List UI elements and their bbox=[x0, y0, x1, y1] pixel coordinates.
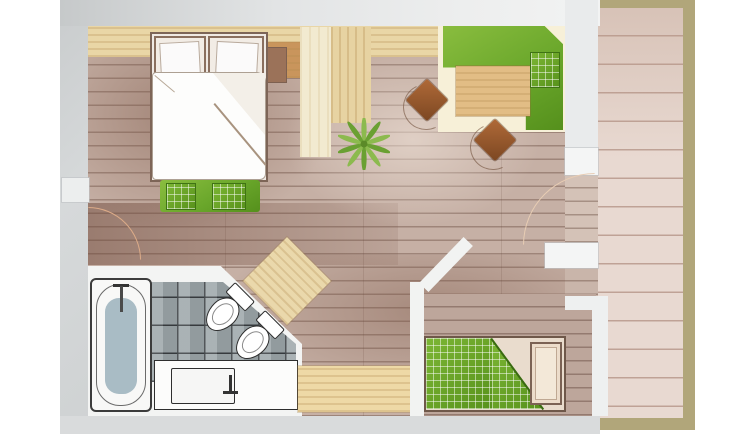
balcony-frame bbox=[598, 0, 695, 430]
beam-wood-strip bbox=[331, 27, 371, 123]
bidet-bowl-rim bbox=[238, 327, 268, 357]
bathtub-faucet-stem bbox=[120, 286, 123, 312]
nightstand bbox=[268, 48, 286, 82]
duvet-fold bbox=[213, 73, 265, 135]
plant bbox=[338, 118, 390, 170]
pillow bbox=[159, 41, 201, 75]
sofa-cushion bbox=[530, 52, 560, 88]
wall-top bbox=[60, 0, 600, 26]
balcony-shade-top bbox=[598, 8, 683, 158]
sink-vanity bbox=[154, 360, 298, 410]
single-bed bbox=[424, 336, 566, 412]
single-bed-duvet bbox=[426, 338, 492, 409]
floor-plan bbox=[0, 0, 754, 435]
door-post bbox=[545, 243, 598, 268]
bathtub bbox=[90, 278, 152, 412]
beam-cream-strip bbox=[300, 27, 331, 157]
sideboard bbox=[298, 366, 410, 412]
double-bed bbox=[150, 32, 268, 182]
bench-cushion bbox=[212, 183, 246, 210]
bathtub-mat bbox=[105, 298, 137, 394]
pillow bbox=[215, 41, 259, 75]
single-bedroom-wall-top bbox=[565, 296, 608, 310]
sink-basin bbox=[171, 368, 235, 404]
plant-icon bbox=[338, 118, 390, 170]
balcony-floor bbox=[598, 8, 683, 418]
single-bedroom-wall-left bbox=[410, 282, 424, 416]
door-post bbox=[62, 178, 89, 202]
duvet-corner-line bbox=[154, 75, 175, 93]
single-bed-pillow-frame bbox=[530, 342, 562, 405]
single-bedroom-wall-right bbox=[592, 300, 608, 416]
single-bed-pillow bbox=[535, 347, 557, 400]
wall-left bbox=[60, 0, 88, 432]
door-post bbox=[565, 148, 598, 175]
sink-faucet-handle bbox=[223, 391, 238, 394]
toilet-bowl-rim bbox=[208, 299, 238, 329]
wall-right-upper bbox=[565, 0, 598, 150]
bench-cushion bbox=[166, 183, 196, 210]
wall-bottom bbox=[60, 416, 600, 434]
coffee-table bbox=[456, 66, 530, 116]
duvet bbox=[152, 72, 266, 180]
